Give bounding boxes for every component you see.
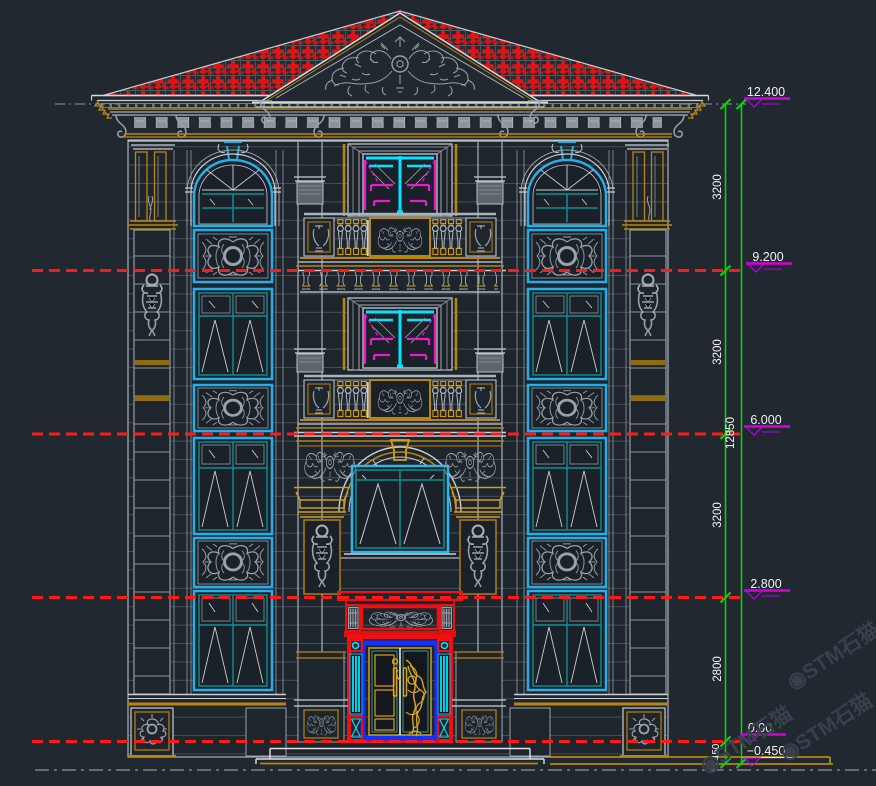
svg-text:12.400: 12.400 bbox=[747, 85, 785, 99]
svg-text:6.000: 6.000 bbox=[750, 413, 781, 427]
svg-text:2.800: 2.800 bbox=[750, 577, 781, 591]
svg-text:3200: 3200 bbox=[712, 174, 724, 200]
svg-text:2800: 2800 bbox=[712, 656, 724, 682]
svg-text:3200: 3200 bbox=[712, 502, 724, 528]
svg-text:3200: 3200 bbox=[712, 339, 724, 365]
svg-text:9.200: 9.200 bbox=[752, 250, 783, 264]
svg-text:12850: 12850 bbox=[725, 417, 737, 449]
